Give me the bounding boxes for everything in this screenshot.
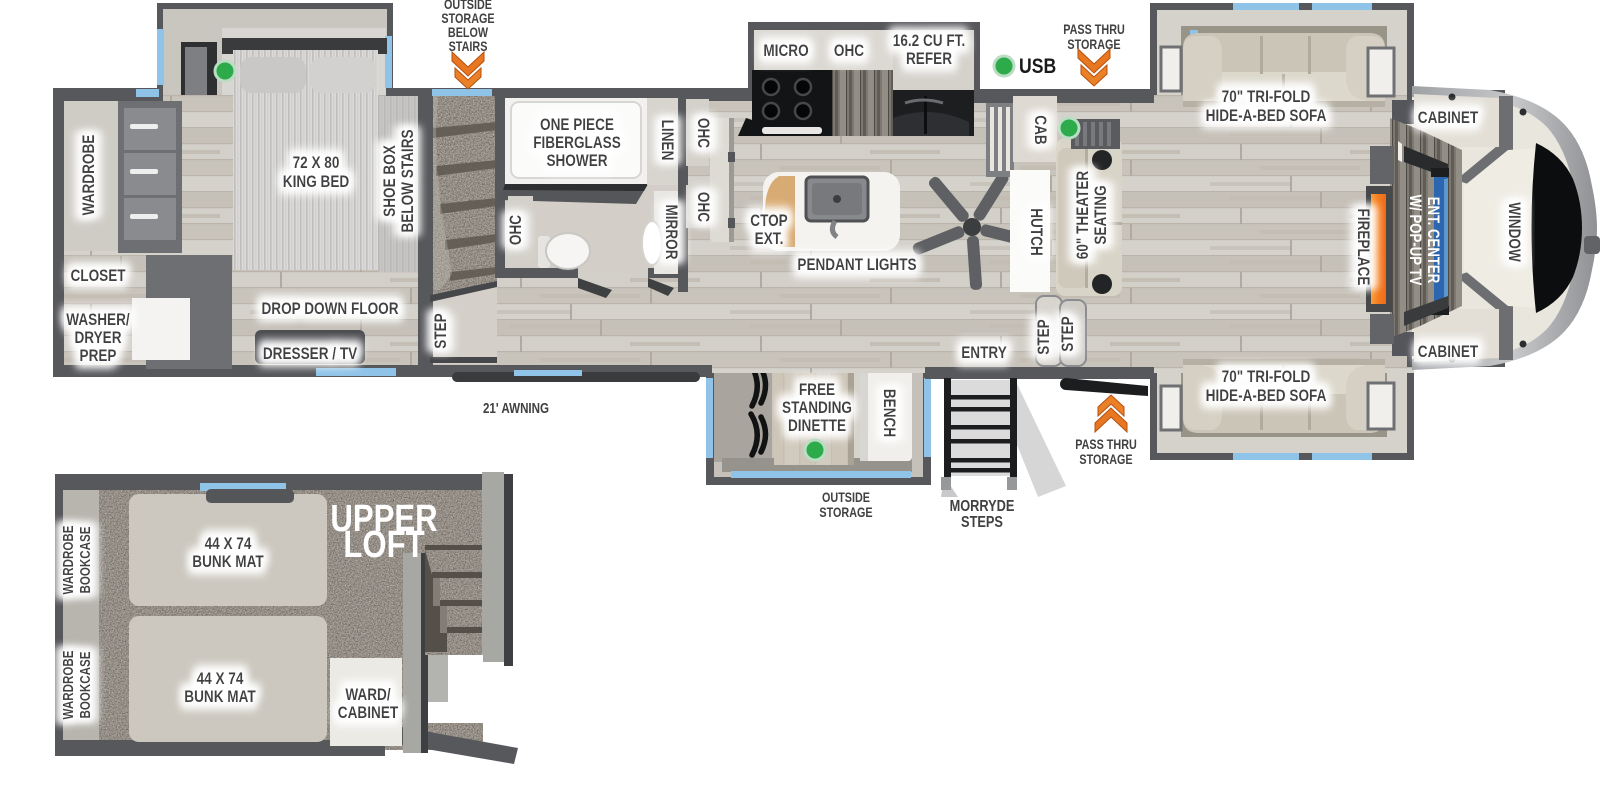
svg-text:DRESSER / TV: DRESSER / TV — [263, 345, 358, 364]
svg-text:CABINET: CABINET — [1418, 343, 1479, 362]
svg-text:WINDOW: WINDOW — [1505, 202, 1524, 262]
svg-text:STEP: STEP — [1035, 319, 1054, 354]
svg-text:HUTCH: HUTCH — [1027, 208, 1046, 256]
svg-text:OUTSIDESTORAGEBELOWSTAIRS: OUTSIDESTORAGEBELOWSTAIRS — [441, 0, 494, 54]
svg-text:BENCH: BENCH — [880, 389, 899, 437]
svg-text:FIREPLACE: FIREPLACE — [1354, 209, 1373, 286]
svg-text:72 X 80KING BED: 72 X 80KING BED — [283, 154, 349, 192]
svg-text:OHC: OHC — [507, 215, 526, 245]
svg-text:CLOSET: CLOSET — [70, 267, 126, 286]
svg-text:21' AWNING: 21' AWNING — [483, 400, 549, 417]
svg-text:70" TRI-FOLDHIDE-A-BED SOFA: 70" TRI-FOLDHIDE-A-BED SOFA — [1206, 368, 1327, 406]
svg-text:OHC: OHC — [834, 42, 864, 61]
svg-text:WARDROBE: WARDROBE — [80, 135, 99, 216]
svg-text:WARDROBEBOOKCASE: WARDROBEBOOKCASE — [60, 650, 94, 719]
svg-text:CABINET: CABINET — [1418, 109, 1479, 128]
svg-text:LINEN: LINEN — [658, 120, 677, 161]
svg-text:ENT. CENTERW/ POP-UP TV: ENT. CENTERW/ POP-UP TV — [1406, 195, 1443, 286]
svg-text:DROP DOWN FLOOR: DROP DOWN FLOOR — [261, 300, 398, 319]
svg-text:UPPERLOFT: UPPERLOFT — [330, 498, 437, 566]
svg-text:OUTSIDESTORAGE: OUTSIDESTORAGE — [819, 490, 872, 520]
svg-text:CTOPEXT.: CTOPEXT. — [750, 212, 787, 249]
svg-text:STEP: STEP — [432, 313, 451, 348]
svg-text:CAB: CAB — [1031, 115, 1050, 144]
svg-text:MICRO: MICRO — [763, 42, 808, 61]
svg-text:70" TRI-FOLDHIDE-A-BED SOFA: 70" TRI-FOLDHIDE-A-BED SOFA — [1206, 88, 1327, 126]
svg-text:ENTRY: ENTRY — [961, 344, 1007, 363]
svg-text:PASS THRUSTORAGE: PASS THRUSTORAGE — [1063, 22, 1125, 52]
svg-text:OHC: OHC — [694, 118, 713, 148]
svg-text:WARDROBEBOOKCASE: WARDROBEBOOKCASE — [60, 525, 94, 594]
svg-text:MIRROR: MIRROR — [662, 204, 681, 259]
svg-text:STEP: STEP — [1059, 316, 1078, 351]
svg-text:OHC: OHC — [694, 192, 713, 222]
svg-text:PASS THRUSTORAGE: PASS THRUSTORAGE — [1075, 437, 1137, 467]
svg-text:WARD/CABINET: WARD/CABINET — [338, 686, 399, 723]
svg-text:USB: USB — [1019, 55, 1056, 79]
svg-text:PENDANT LIGHTS: PENDANT LIGHTS — [797, 256, 916, 275]
